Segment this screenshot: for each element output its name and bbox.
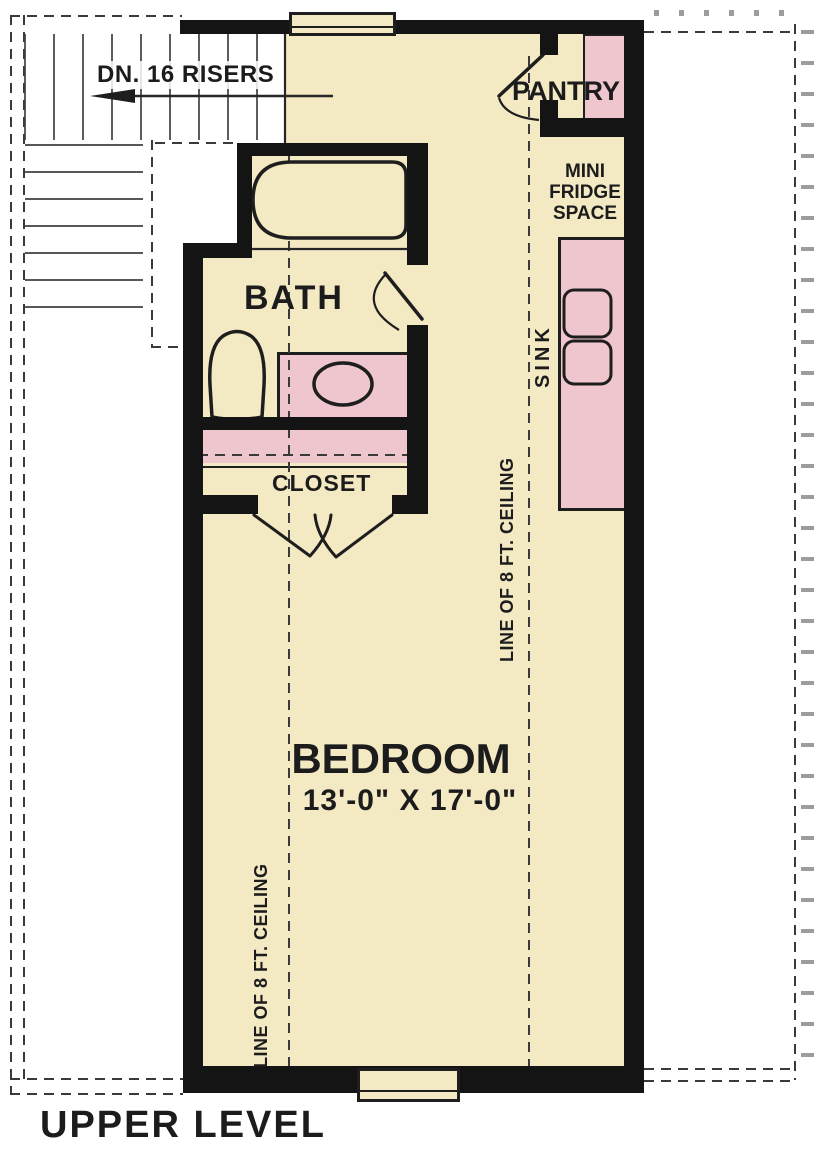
stair-treads-lower: [25, 145, 143, 307]
closet-label: CLOSET: [272, 470, 371, 497]
sink-bowl-bottom: [564, 341, 611, 384]
wall-bath-closet-divider: [183, 417, 428, 430]
closet-doors: [254, 515, 392, 557]
wall-closet-south-right: [392, 495, 428, 514]
wall-bath-top: [237, 143, 428, 156]
bath-door: [374, 273, 422, 330]
floor-plan: DN. 16 RISERS PANTRY MINI FRIDGE SPACE S…: [0, 0, 830, 1160]
bath-label: BATH: [244, 279, 344, 318]
ceiling-note-left: LINE OF 8 FT. CEILING: [251, 816, 278, 1068]
toilet: [210, 332, 264, 420]
sink-label: SINK: [532, 290, 558, 388]
bathtub: [253, 162, 406, 238]
mini-fridge-label: MINI FRIDGE SPACE: [538, 161, 632, 224]
ceiling-note-right: LINE OF 8 FT. CEILING: [497, 410, 524, 662]
sink-bowl-top: [564, 290, 611, 337]
page-title: UPPER LEVEL: [40, 1104, 326, 1147]
wall-top: [180, 20, 644, 34]
stairs-note: DN. 16 RISERS: [94, 61, 277, 89]
wall-closet-south-left: [183, 495, 258, 514]
vanity-basin: [314, 363, 372, 405]
down-arrow-icon: [90, 89, 333, 103]
bedroom-label: BEDROOM: [284, 735, 518, 783]
wall-pantry-south: [540, 118, 624, 137]
wall-left: [183, 243, 203, 1093]
window-top: [289, 12, 396, 36]
bedroom-dimensions: 13'-0" X 17'-0": [288, 784, 532, 818]
window-bottom: [357, 1068, 460, 1102]
wall-tub-left: [237, 143, 252, 258]
wall-bath-right-upper: [407, 156, 428, 265]
wall-pantry-stub-top: [540, 34, 558, 55]
pantry-label: PANTRY: [512, 76, 620, 107]
